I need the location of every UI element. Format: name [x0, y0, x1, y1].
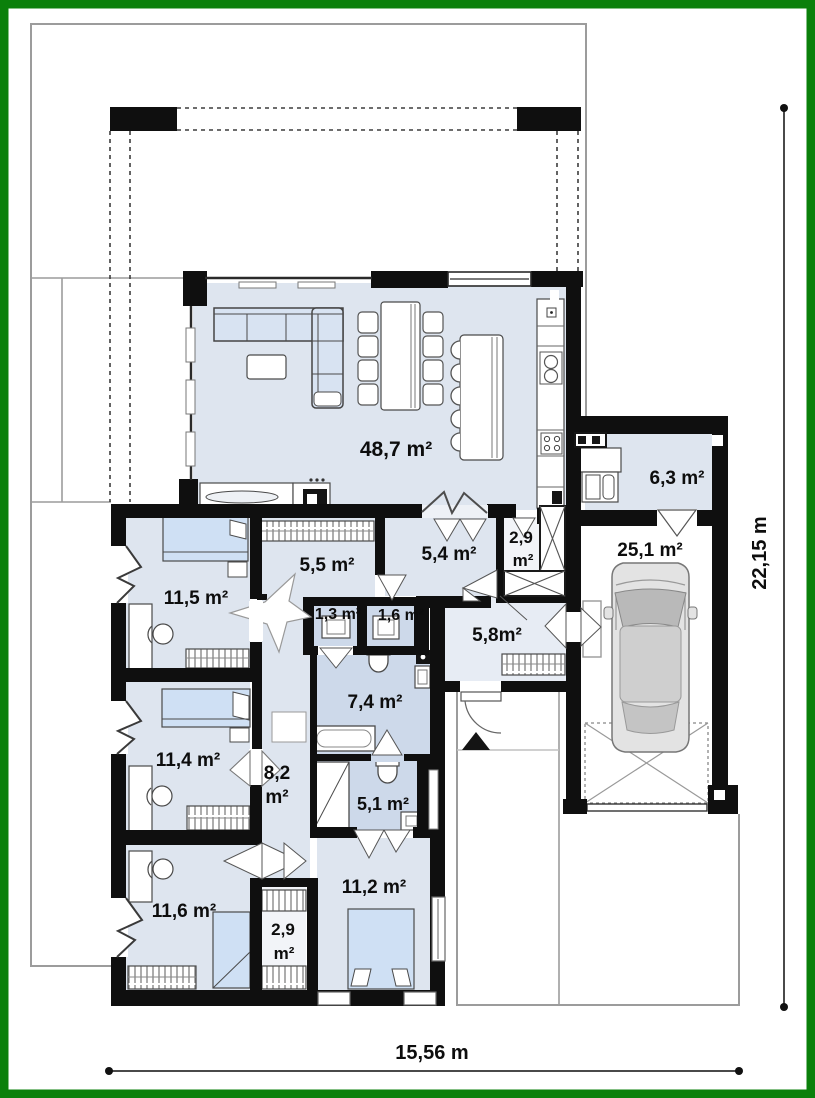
- svg-text:25,1 m²: 25,1 m²: [617, 540, 682, 561]
- svg-text:22,15 m: 22,15 m: [749, 516, 771, 589]
- svg-text:11,5 m²: 11,5 m²: [164, 588, 228, 609]
- svg-text:6,3 m²: 6,3 m²: [650, 468, 705, 489]
- svg-text:8,2: 8,2: [264, 763, 290, 784]
- svg-text:48,7 m²: 48,7 m²: [360, 438, 432, 461]
- svg-text:5,1 m²: 5,1 m²: [357, 794, 409, 814]
- svg-text:1,6 m²: 1,6 m²: [378, 607, 424, 624]
- svg-text:11,2 m²: 11,2 m²: [342, 877, 406, 898]
- svg-text:m²: m²: [265, 787, 288, 808]
- svg-text:m²: m²: [274, 944, 295, 963]
- svg-text:5,5 m²: 5,5 m²: [300, 555, 355, 576]
- svg-text:2,9: 2,9: [271, 920, 295, 939]
- svg-text:7,4 m²: 7,4 m²: [348, 692, 403, 713]
- svg-text:11,4 m²: 11,4 m²: [156, 750, 220, 771]
- svg-text:11,6 m²: 11,6 m²: [152, 901, 216, 922]
- svg-text:2,9: 2,9: [509, 528, 533, 547]
- svg-text:15,56 m: 15,56 m: [395, 1042, 468, 1064]
- svg-text:m²: m²: [513, 551, 534, 570]
- svg-text:5,4 m²: 5,4 m²: [422, 544, 477, 565]
- svg-text:1,3 m²: 1,3 m²: [315, 606, 361, 623]
- svg-text:5,8m²: 5,8m²: [472, 625, 522, 646]
